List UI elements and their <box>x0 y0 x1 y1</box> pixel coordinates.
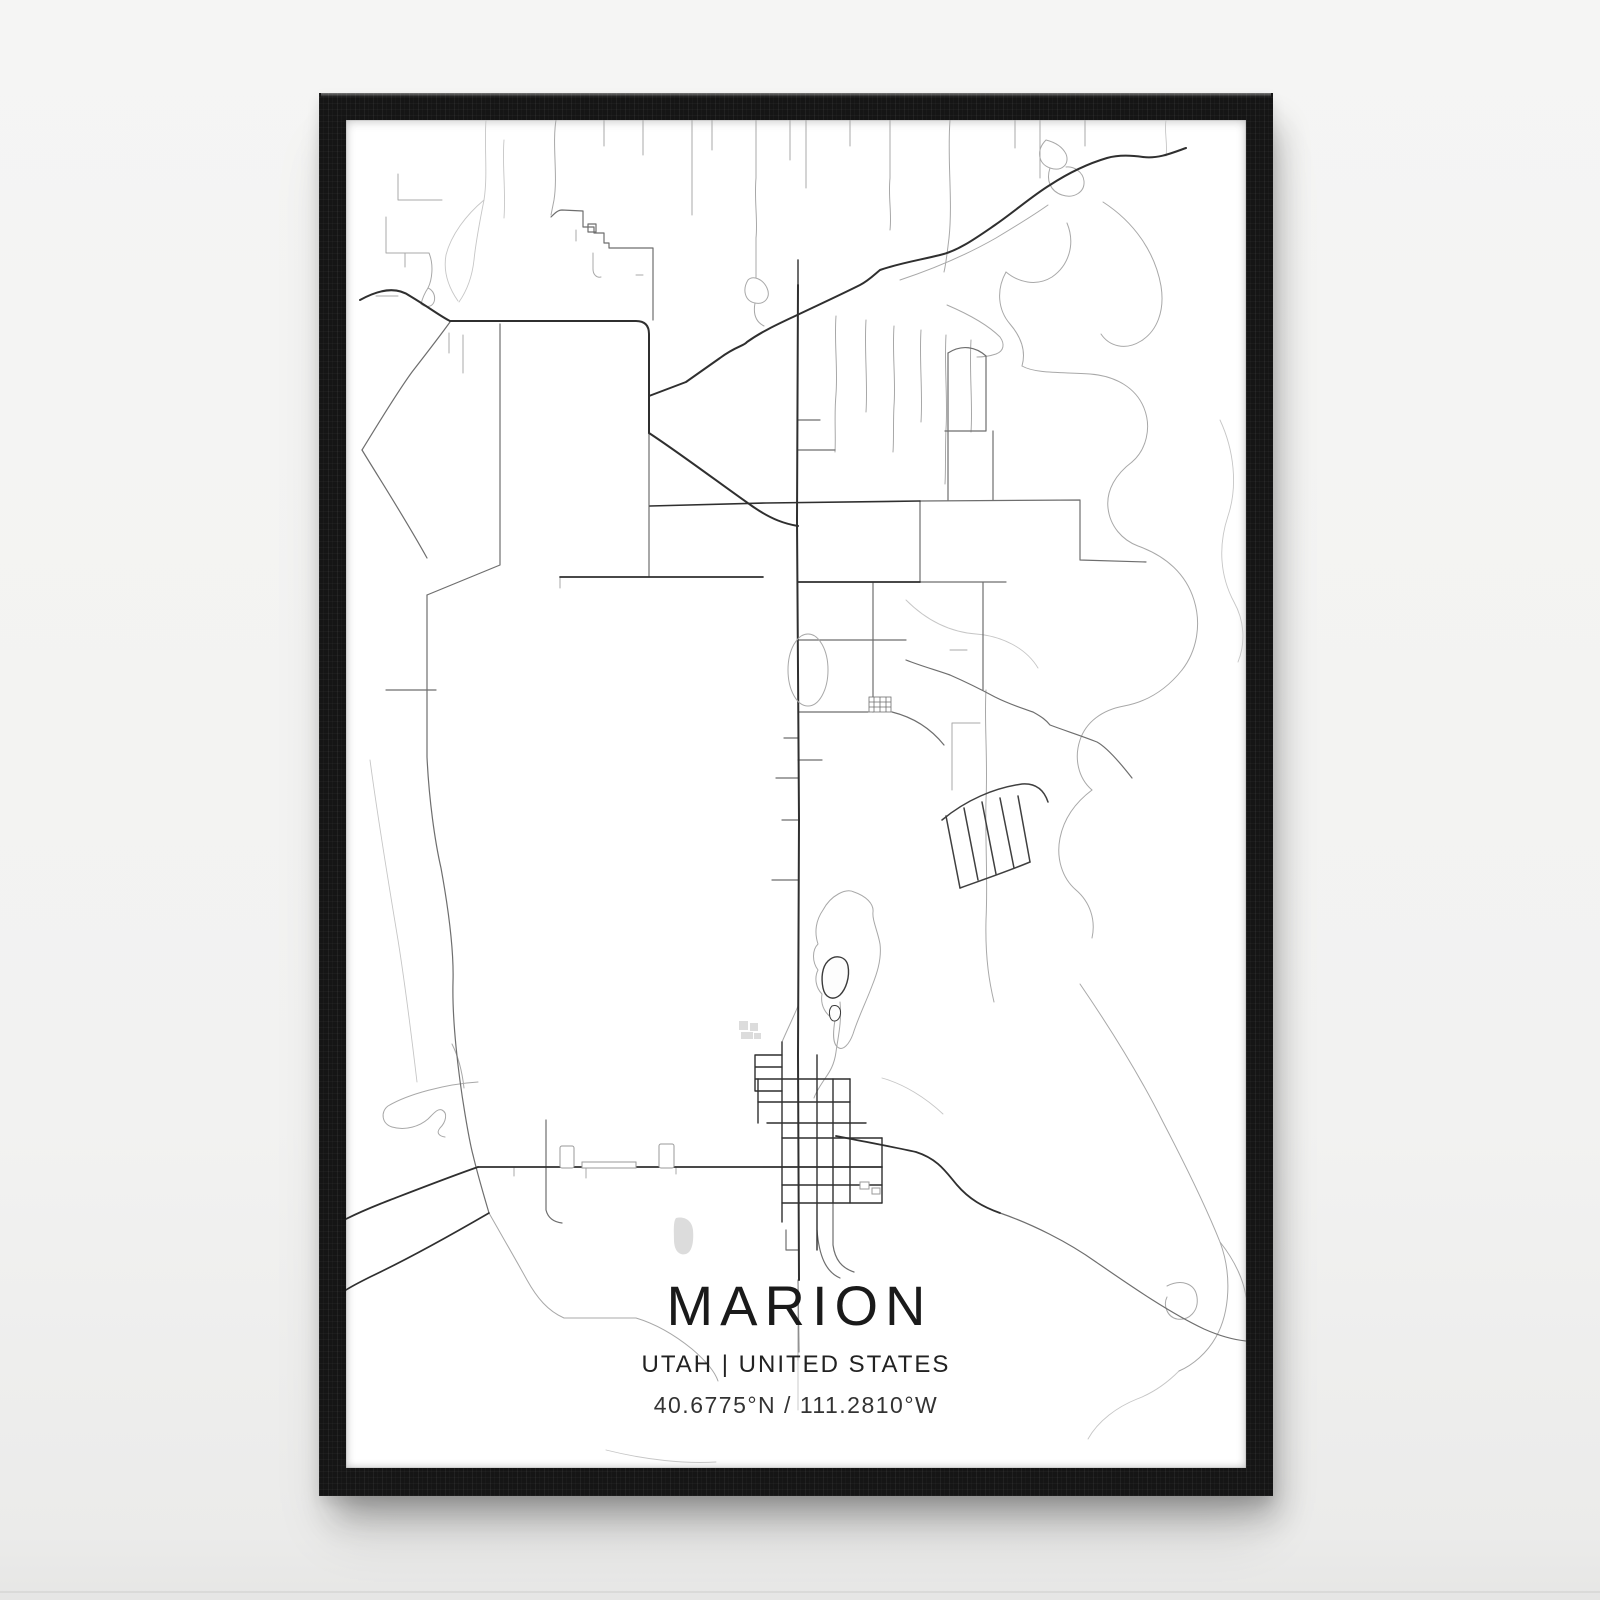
highway-northeast <box>649 148 1186 396</box>
building-outlines <box>560 1144 880 1194</box>
poster-title: MARION <box>346 1276 1246 1336</box>
hillside-comb-streets <box>942 784 1048 888</box>
loop-drive <box>788 634 828 706</box>
poster-frame: MARION UTAH | UNITED STATES 40.6775°N / … <box>319 93 1273 1496</box>
main-vertical-highway <box>797 285 799 1280</box>
poster-subtitle: UTAH | UNITED STATES <box>346 1351 1246 1379</box>
poster-text-block: MARION UTAH | UNITED STATES 40.6775°N / … <box>346 1276 1246 1419</box>
highway-southeast <box>836 1136 1000 1213</box>
highway-west <box>360 290 450 321</box>
primary-roads <box>346 148 1186 1290</box>
secondary-roads <box>362 210 1246 1352</box>
farm-grid-icon <box>869 697 891 712</box>
wall-backdrop: MARION UTAH | UNITED STATES 40.6775°N / … <box>0 0 1600 1600</box>
building-footprints <box>674 1021 761 1254</box>
poster-coordinates: 40.6775°N / 111.2810°W <box>346 1392 1246 1419</box>
poster-paper: MARION UTAH | UNITED STATES 40.6775°N / … <box>346 120 1246 1468</box>
floor-seam-line <box>0 1591 1600 1593</box>
frame-top-highlight <box>321 93 1271 97</box>
town-street-grid <box>755 1042 882 1250</box>
street-map-graphic <box>346 120 1246 1468</box>
